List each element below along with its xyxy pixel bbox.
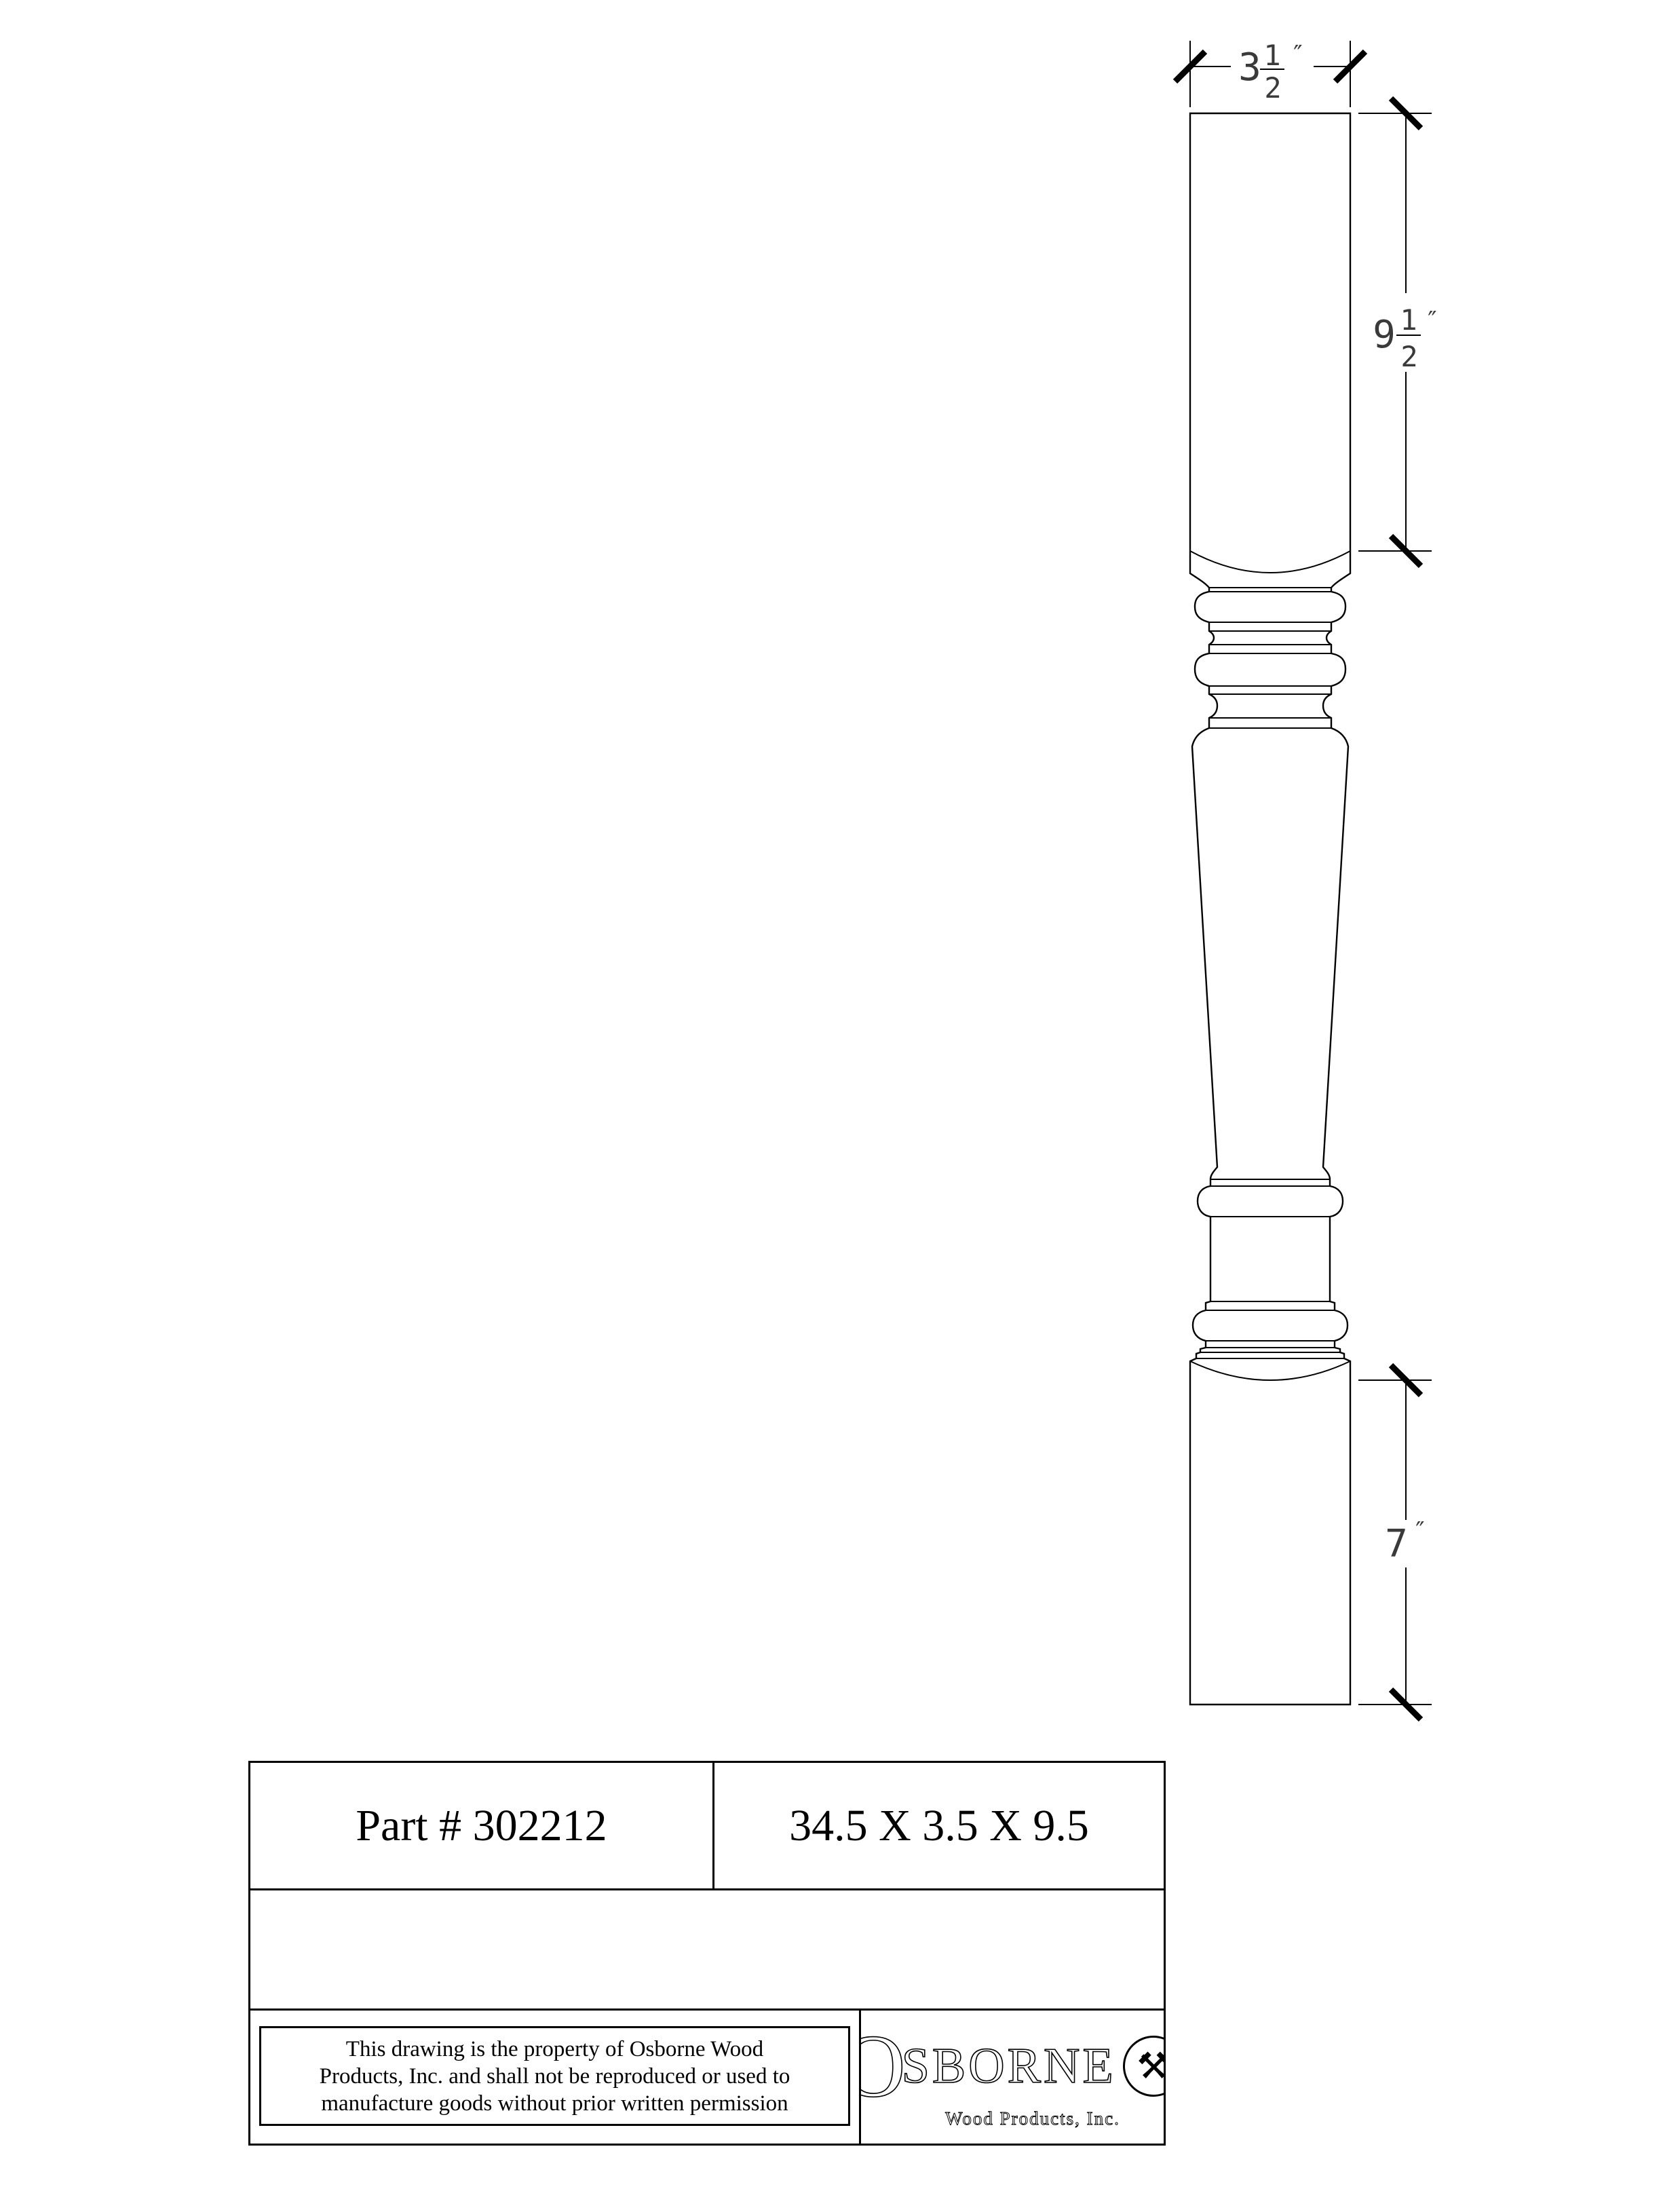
dim-square-top-numerator: 1 (1400, 303, 1417, 337)
dim-width-whole: 3 (1238, 45, 1261, 90)
disclaimer-cell: This drawing is the property of Osborne … (250, 2011, 861, 2144)
dim-width-denominator: 2 (1264, 71, 1281, 104)
drawing-sheet: 3 1 2 ″ 9 1 2 ″ 7 ″ (0, 0, 1680, 2189)
dimension-square-top: 9 1 2 ″ (1358, 98, 1440, 566)
crossed-hammers-icon: ⚒ (1123, 2036, 1164, 2097)
title-block: Part # 302212 34.5 X 3.5 X 9.5 This draw… (248, 1761, 1166, 2146)
dim-square-top-whole: 9 (1373, 313, 1396, 357)
dim-foot-whole: 7 (1385, 1522, 1408, 1566)
notes-row (250, 1890, 1164, 2011)
part-number: Part # 302212 (250, 1763, 714, 1888)
disclaimer-line: This drawing is the property of Osborne … (346, 2036, 763, 2063)
title-block-footer-row: This drawing is the property of Osborne … (250, 2011, 1164, 2144)
hammer-and-pick-glyph: ⚒ (1137, 2044, 1164, 2087)
leg-profile-outline (1190, 113, 1350, 1705)
dimension-width: 3 1 2 ″ (1175, 39, 1365, 107)
dim-width-unit: ″ (1291, 41, 1305, 69)
logo-initial-o: O (861, 2025, 906, 2107)
disclaimer-line: Products, Inc. and shall not be reproduc… (320, 2063, 790, 2090)
overall-size: 34.5 X 3.5 X 9.5 (714, 1763, 1164, 1888)
disclaimer-box: This drawing is the property of Osborne … (259, 2026, 850, 2126)
company-logo: O SBORNE ⚒ Wood Products, Inc. (861, 2011, 1164, 2144)
dim-square-top-denominator: 2 (1400, 340, 1417, 373)
dim-foot-unit: ″ (1413, 1517, 1428, 1545)
logo-name-text: SBORNE (902, 2041, 1116, 2091)
logo-wordmark: O SBORNE ⚒ (861, 2025, 1164, 2107)
dimension-foot: 7 ″ (1358, 1365, 1432, 1719)
title-block-header-row: Part # 302212 34.5 X 3.5 X 9.5 (250, 1763, 1164, 1890)
leg-feature-lines (1190, 551, 1350, 1380)
logo-subtitle: Wood Products, Inc. (945, 2108, 1120, 2129)
dim-square-top-unit: ″ (1425, 307, 1440, 335)
disclaimer-line: manufacture goods without prior written … (321, 2090, 788, 2117)
dim-width-numerator: 1 (1263, 39, 1280, 72)
